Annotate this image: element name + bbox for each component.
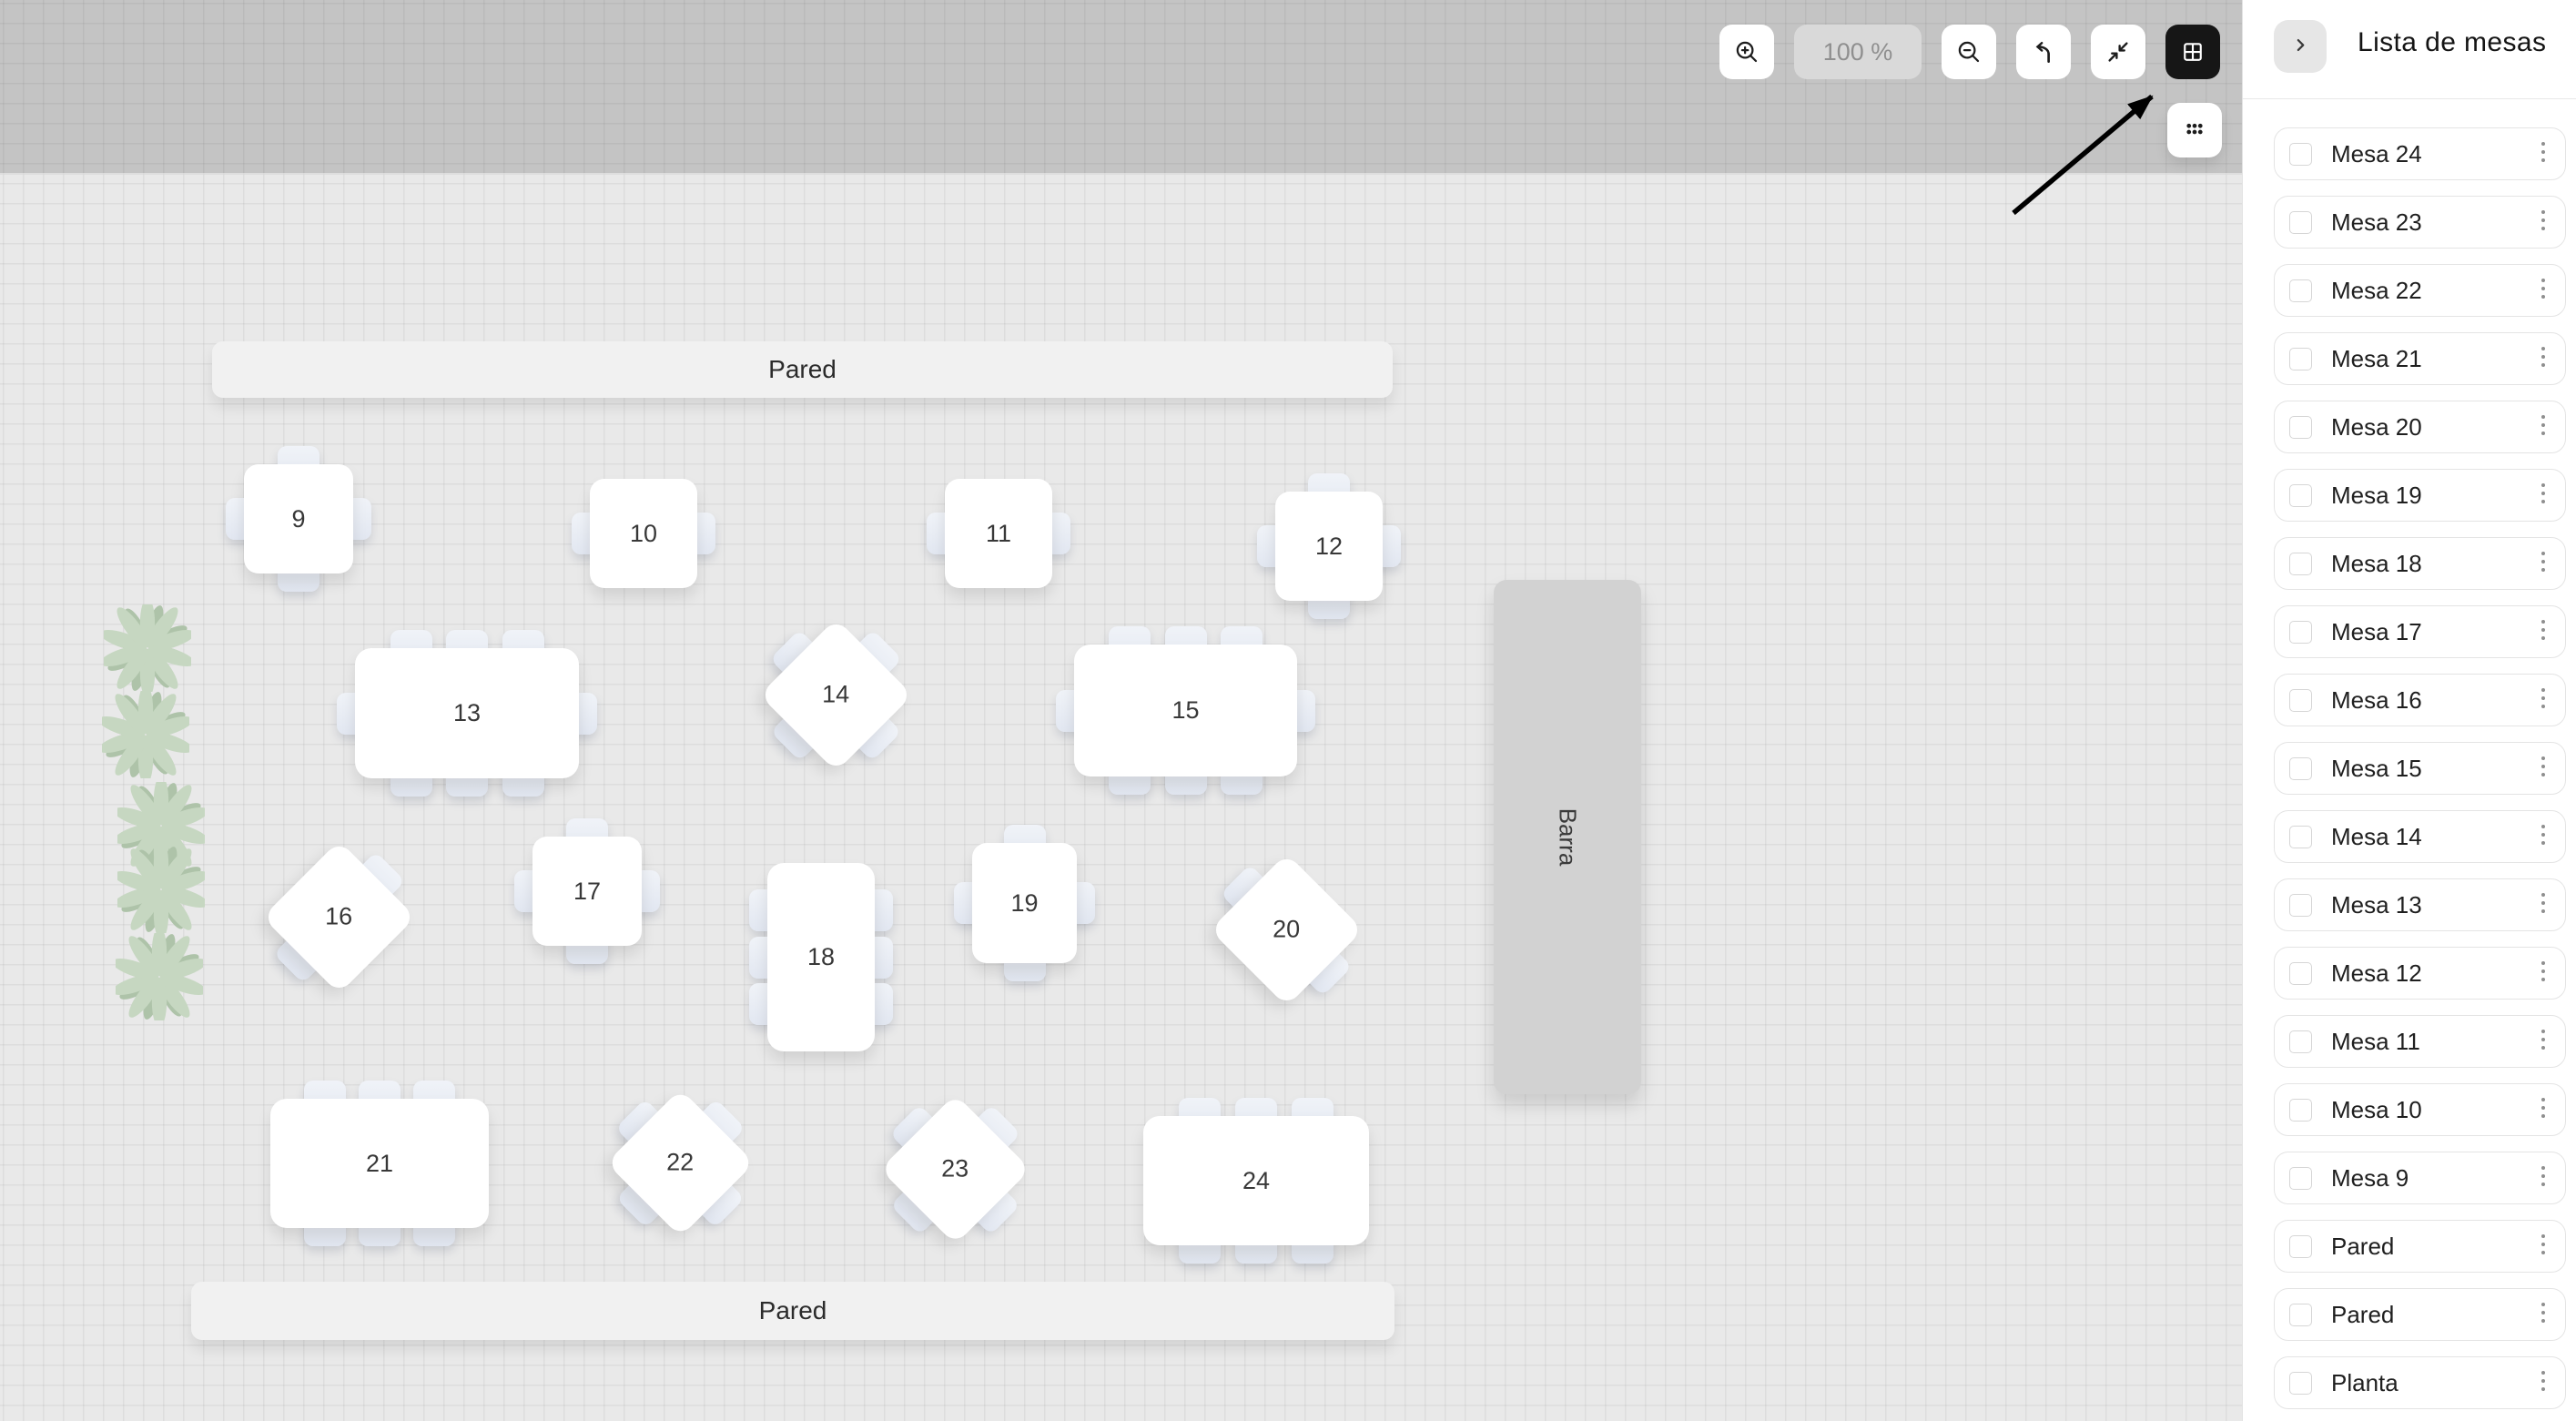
item-checkbox[interactable] xyxy=(2289,689,2312,712)
more-options-button[interactable] xyxy=(2167,103,2222,157)
plant-icon xyxy=(102,691,189,778)
wall-top[interactable]: Pared xyxy=(212,341,1393,398)
table-top: 12 xyxy=(1275,492,1383,601)
plant[interactable] xyxy=(117,846,205,933)
table-19[interactable]: 19 xyxy=(972,843,1077,963)
plant-icon xyxy=(116,933,203,1020)
table-11[interactable]: 11 xyxy=(945,479,1052,588)
table-number: 16 xyxy=(325,903,352,931)
item-checkbox[interactable] xyxy=(2289,1167,2312,1190)
table-top: 17 xyxy=(532,837,642,946)
grid-view-button-active[interactable] xyxy=(2165,25,2220,79)
table-top: 24 xyxy=(1143,1116,1369,1245)
item-checkbox[interactable] xyxy=(2289,621,2312,644)
item-menu-button[interactable] xyxy=(2540,618,2547,646)
wall-bottom[interactable]: Pared xyxy=(191,1282,1394,1340)
table-16[interactable]: 16 xyxy=(262,840,415,993)
item-menu-button[interactable] xyxy=(2540,1096,2547,1124)
mesa-list-item[interactable]: Mesa 16 xyxy=(2274,674,2566,726)
item-label: Mesa 13 xyxy=(2331,891,2540,919)
item-checkbox[interactable] xyxy=(2289,1235,2312,1258)
item-label: Mesa 22 xyxy=(2331,277,2540,305)
item-menu-button[interactable] xyxy=(2540,482,2547,510)
table-top: 9 xyxy=(244,464,353,573)
table-top: 16 xyxy=(262,840,415,993)
table-top: 23 xyxy=(880,1094,1030,1244)
item-checkbox[interactable] xyxy=(2289,962,2312,985)
mesa-list-item[interactable]: Mesa 11 xyxy=(2274,1015,2566,1068)
bar-element[interactable]: Barra xyxy=(1494,580,1641,1094)
table-top: 21 xyxy=(270,1099,489,1228)
item-checkbox[interactable] xyxy=(2289,348,2312,370)
item-checkbox[interactable] xyxy=(2289,143,2312,166)
table-number: 20 xyxy=(1273,916,1300,944)
mesa-list-item[interactable]: Pared xyxy=(2274,1288,2566,1341)
mesa-list-item[interactable]: Mesa 23 xyxy=(2274,196,2566,249)
plant[interactable] xyxy=(116,933,203,1020)
mesa-list-item[interactable]: Mesa 22 xyxy=(2274,264,2566,317)
item-checkbox[interactable] xyxy=(2289,279,2312,302)
table-top: 14 xyxy=(759,618,912,771)
item-label: Mesa 23 xyxy=(2331,208,2540,237)
item-menu-button[interactable] xyxy=(2540,959,2547,988)
mesa-list-item[interactable]: Mesa 12 xyxy=(2274,947,2566,1000)
plant-icon xyxy=(104,604,191,692)
item-label: Mesa 24 xyxy=(2331,140,2540,168)
item-label: Mesa 16 xyxy=(2331,686,2540,715)
zoom-in-button[interactable] xyxy=(1719,25,1774,79)
mesa-list-item[interactable]: Mesa 20 xyxy=(2274,401,2566,453)
table-number: 19 xyxy=(1010,889,1038,918)
item-checkbox[interactable] xyxy=(2289,826,2312,848)
mesa-list-item[interactable]: Mesa 24 xyxy=(2274,127,2566,180)
table-21[interactable]: 21 xyxy=(270,1099,489,1228)
item-label: Mesa 11 xyxy=(2331,1028,2540,1056)
path-tool-button[interactable] xyxy=(2016,25,2071,79)
table-number: 10 xyxy=(630,520,657,548)
item-checkbox[interactable] xyxy=(2289,211,2312,234)
table-number: 24 xyxy=(1242,1167,1270,1195)
zoom-out-icon xyxy=(1955,38,1983,66)
table-top: 19 xyxy=(972,843,1077,963)
plant-icon xyxy=(117,846,205,933)
table-top: 15 xyxy=(1074,645,1297,776)
table-top: 11 xyxy=(945,479,1052,588)
item-menu-button[interactable] xyxy=(2540,1028,2547,1056)
table-number: 21 xyxy=(366,1150,393,1178)
table-13[interactable]: 13 xyxy=(355,648,579,778)
item-label: Mesa 18 xyxy=(2331,550,2540,578)
table-number: 11 xyxy=(986,520,1011,548)
item-checkbox[interactable] xyxy=(2289,1099,2312,1122)
table-10[interactable]: 10 xyxy=(590,479,697,588)
zoom-level-display: 100 % xyxy=(1794,25,1922,79)
table-20[interactable]: 20 xyxy=(1210,853,1363,1006)
table-number: 23 xyxy=(941,1155,969,1183)
table-number: 14 xyxy=(822,681,849,709)
bar-label: Barra xyxy=(1553,808,1581,867)
sidebar-divider xyxy=(2243,98,2576,99)
mesa-list-item[interactable]: Mesa 18 xyxy=(2274,537,2566,590)
table-top: 20 xyxy=(1210,853,1363,1006)
item-menu-button[interactable] xyxy=(2540,755,2547,783)
table-top: 18 xyxy=(767,863,875,1051)
item-menu-button[interactable] xyxy=(2540,208,2547,237)
mesa-list-item[interactable]: Mesa 15 xyxy=(2274,742,2566,795)
mesa-list-item[interactable]: Mesa 9 xyxy=(2274,1152,2566,1204)
item-checkbox[interactable] xyxy=(2289,553,2312,575)
item-menu-button[interactable] xyxy=(2540,1164,2547,1193)
item-checkbox[interactable] xyxy=(2289,1372,2312,1395)
path-tool-icon xyxy=(2030,38,2057,66)
table-number: 13 xyxy=(453,699,481,727)
item-label: Mesa 17 xyxy=(2331,618,2540,646)
mesa-list-item[interactable]: Mesa 14 xyxy=(2274,810,2566,863)
plant[interactable] xyxy=(102,691,189,778)
table-number: 15 xyxy=(1171,696,1199,725)
mesa-list-item[interactable]: Mesa 17 xyxy=(2274,605,2566,658)
sidebar-title: Lista de mesas xyxy=(2358,27,2546,58)
item-label: Mesa 12 xyxy=(2331,959,2540,988)
table-number: 22 xyxy=(666,1149,694,1177)
table-number: 17 xyxy=(573,878,601,906)
table-22[interactable]: 22 xyxy=(606,1089,755,1237)
mesa-list-item[interactable]: Pared xyxy=(2274,1220,2566,1273)
table-18[interactable]: 18 xyxy=(767,863,875,1051)
item-menu-button[interactable] xyxy=(2540,686,2547,715)
item-label: Mesa 20 xyxy=(2331,413,2540,442)
item-label: Planta xyxy=(2331,1369,2540,1397)
mesa-list-item[interactable]: Mesa 21 xyxy=(2274,332,2566,385)
table-top: 10 xyxy=(590,479,697,588)
item-menu-button[interactable] xyxy=(2540,1369,2547,1397)
item-label: Pared xyxy=(2331,1233,2540,1261)
table-12[interactable]: 12 xyxy=(1275,492,1383,601)
table-list-sidebar: Lista de mesas Mesa 24 Mesa 23 Mesa 22 M… xyxy=(2242,0,2576,1421)
item-checkbox[interactable] xyxy=(2289,757,2312,780)
table-number: 9 xyxy=(291,505,305,533)
mesa-list-item[interactable]: Mesa 13 xyxy=(2274,878,2566,931)
table-number: 12 xyxy=(1315,533,1343,561)
table-9[interactable]: 9 xyxy=(244,464,353,573)
floor-plan-app: ParedParedBarra9101112131415161718192021… xyxy=(0,0,2576,1421)
grid-icon xyxy=(2179,38,2206,66)
item-label: Mesa 19 xyxy=(2331,482,2540,510)
canvas-toolbar: 100 % xyxy=(1719,25,2220,79)
mesa-list-item[interactable]: Mesa 10 xyxy=(2274,1083,2566,1136)
item-menu-button[interactable] xyxy=(2540,277,2547,305)
mesa-list-item[interactable]: Mesa 19 xyxy=(2274,469,2566,522)
item-menu-button[interactable] xyxy=(2540,891,2547,919)
table-top: 22 xyxy=(606,1089,755,1237)
table-24[interactable]: 24 xyxy=(1143,1116,1369,1245)
table-number: 18 xyxy=(807,943,835,971)
zoom-out-button[interactable] xyxy=(1942,25,1996,79)
item-menu-button[interactable] xyxy=(2540,140,2547,168)
wall-label: Pared xyxy=(759,1296,827,1325)
floor-plan-canvas[interactable]: ParedParedBarra9101112131415161718192021… xyxy=(0,0,2242,1421)
item-label: Mesa 9 xyxy=(2331,1164,2540,1193)
item-checkbox[interactable] xyxy=(2289,484,2312,507)
collapse-view-button[interactable] xyxy=(2091,25,2145,79)
item-menu-button[interactable] xyxy=(2540,1233,2547,1261)
chevron-right-icon xyxy=(2288,33,2312,61)
table-top: 13 xyxy=(355,648,579,778)
item-checkbox[interactable] xyxy=(2289,416,2312,439)
item-label: Mesa 21 xyxy=(2331,345,2540,373)
item-label: Mesa 14 xyxy=(2331,823,2540,851)
plant[interactable] xyxy=(104,604,191,692)
item-menu-button[interactable] xyxy=(2540,550,2547,578)
item-label: Pared xyxy=(2331,1301,2540,1329)
item-label: Mesa 10 xyxy=(2331,1096,2540,1124)
wall-label: Pared xyxy=(768,355,837,384)
item-label: Mesa 15 xyxy=(2331,755,2540,783)
item-checkbox[interactable] xyxy=(2289,1304,2312,1326)
item-menu-button[interactable] xyxy=(2540,823,2547,851)
collapse-arrows-icon xyxy=(2104,38,2132,66)
table-15[interactable]: 15 xyxy=(1074,645,1297,776)
dots-grid-icon xyxy=(2181,115,2208,147)
table-23[interactable]: 23 xyxy=(880,1094,1030,1244)
item-checkbox[interactable] xyxy=(2289,1030,2312,1053)
item-menu-button[interactable] xyxy=(2540,1301,2547,1329)
item-checkbox[interactable] xyxy=(2289,894,2312,917)
table-17[interactable]: 17 xyxy=(532,837,642,946)
mesa-list-item[interactable]: Planta xyxy=(2274,1356,2566,1409)
collapse-sidebar-button[interactable] xyxy=(2274,20,2327,73)
item-menu-button[interactable] xyxy=(2540,413,2547,442)
zoom-in-icon xyxy=(1733,38,1760,66)
item-menu-button[interactable] xyxy=(2540,345,2547,373)
table-14[interactable]: 14 xyxy=(759,618,912,771)
